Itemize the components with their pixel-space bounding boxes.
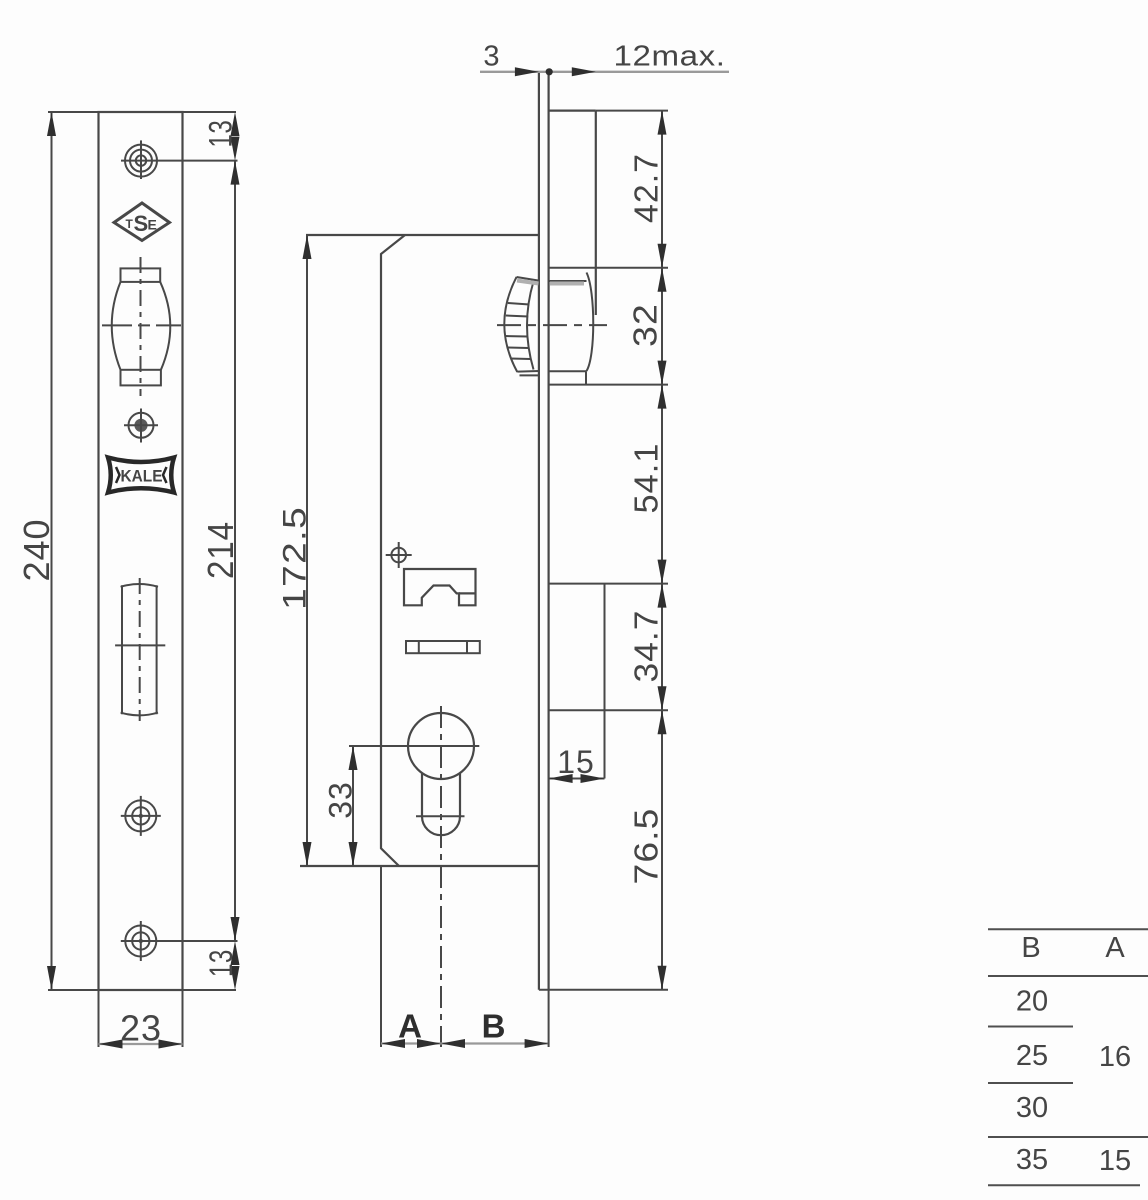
svg-text:20: 20 [1016, 986, 1048, 1018]
svg-text:S: S [134, 211, 149, 236]
svg-text:32: 32 [627, 303, 664, 347]
svg-text:13: 13 [203, 949, 239, 977]
svg-text:KALE: KALE [121, 467, 163, 486]
svg-text:15: 15 [1099, 1145, 1131, 1177]
svg-text:172.5: 172.5 [277, 506, 313, 610]
svg-text:B: B [1021, 932, 1040, 964]
svg-text:23: 23 [120, 1008, 162, 1049]
svg-text:35: 35 [1016, 1144, 1048, 1176]
svg-text:34.7: 34.7 [628, 610, 665, 683]
svg-text:42.7: 42.7 [628, 153, 665, 223]
svg-text:12max.: 12max. [614, 41, 726, 73]
svg-text:3: 3 [483, 40, 500, 72]
svg-text:T: T [126, 217, 134, 231]
svg-text:A: A [1105, 932, 1125, 964]
svg-text:B: B [482, 1008, 506, 1045]
svg-text:A: A [398, 1008, 422, 1045]
svg-text:E: E [148, 217, 157, 233]
svg-text:30: 30 [1016, 1092, 1048, 1124]
svg-text:54.1: 54.1 [628, 443, 665, 514]
svg-text:25: 25 [1016, 1040, 1048, 1072]
svg-text:214: 214 [200, 521, 241, 579]
svg-text:240: 240 [16, 518, 57, 581]
svg-text:76.5: 76.5 [628, 808, 665, 885]
svg-text:15: 15 [557, 744, 595, 780]
svg-text:16: 16 [1099, 1041, 1131, 1073]
svg-text:13: 13 [203, 120, 239, 148]
svg-text:33: 33 [323, 781, 359, 819]
